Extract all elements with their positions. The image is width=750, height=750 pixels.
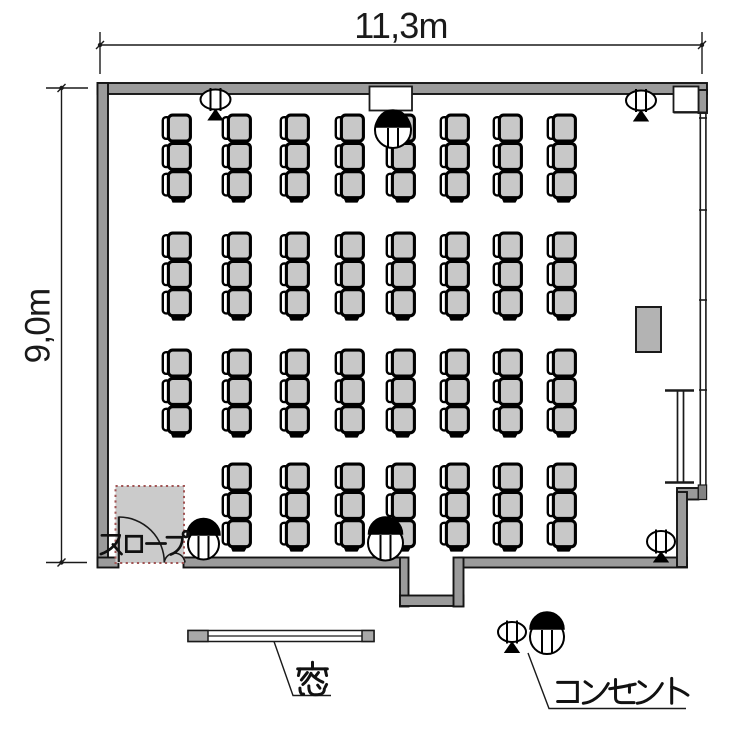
- svg-text:9,0m: 9,0m: [19, 289, 58, 364]
- svg-text:11,3m: 11,3m: [354, 5, 447, 46]
